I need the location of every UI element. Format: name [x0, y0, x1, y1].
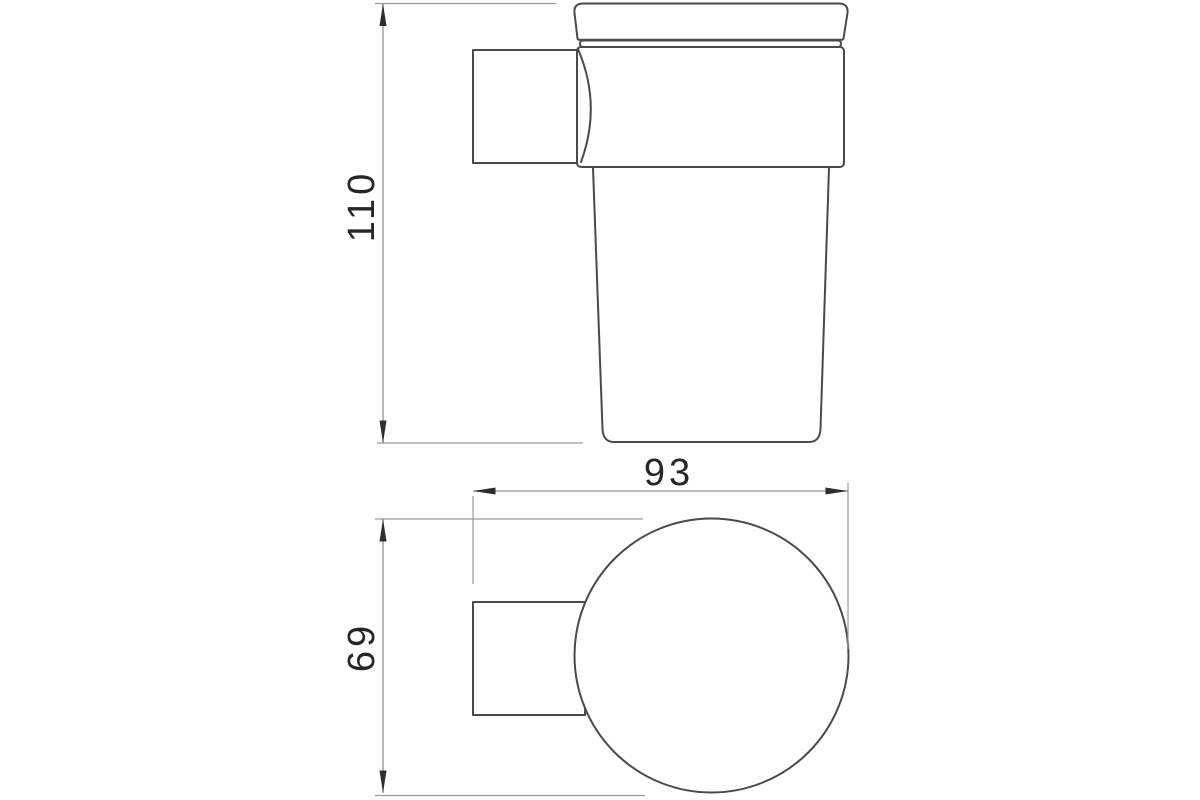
lid-rim — [580, 41, 841, 48]
side-elevation-view — [473, 4, 848, 443]
arrowhead-down-icon — [380, 771, 387, 794]
wall-bracket-side — [473, 50, 579, 163]
technical-drawing-canvas: 110 93 69 — [0, 0, 1200, 800]
wall-bracket-plan — [473, 602, 585, 715]
top-plan-view — [473, 519, 849, 793]
arrowhead-up-icon — [380, 4, 387, 27]
depth-dimension-label: 93 — [644, 452, 694, 494]
cup-body — [593, 168, 829, 442]
cup-plan-circle — [575, 519, 849, 793]
diameter-dimension-label: 69 — [341, 622, 383, 672]
arrowhead-left-icon — [473, 488, 496, 495]
arrowhead-right-icon — [826, 488, 849, 495]
cup-lid — [574, 4, 847, 40]
arrowhead-down-icon — [380, 421, 387, 444]
tumbler-holder-drawing: 110 93 69 — [0, 0, 1200, 800]
holder-ring — [577, 47, 844, 167]
height-dimension-label: 110 — [341, 170, 383, 243]
arrowhead-up-icon — [380, 519, 387, 542]
